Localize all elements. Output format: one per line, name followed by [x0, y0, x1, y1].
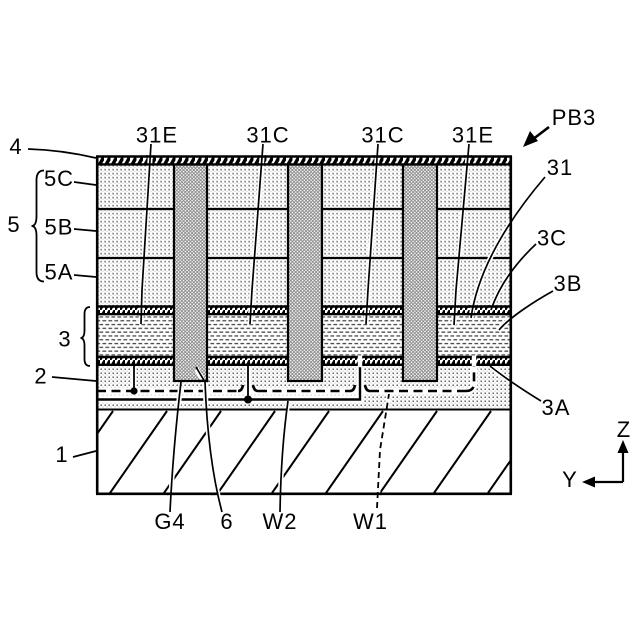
- svg-text:31E: 31E: [452, 123, 494, 148]
- svg-text:1: 1: [55, 442, 68, 467]
- svg-text:3C: 3C: [537, 226, 567, 251]
- svg-text:3: 3: [58, 327, 71, 352]
- svg-text:W1: W1: [353, 509, 388, 534]
- svg-text:G4: G4: [154, 509, 185, 534]
- svg-text:31E: 31E: [136, 123, 178, 148]
- svg-text:5A: 5A: [45, 260, 74, 285]
- svg-text:5C: 5C: [44, 166, 74, 191]
- svg-text:31C: 31C: [246, 123, 289, 148]
- svg-text:5B: 5B: [45, 215, 74, 240]
- svg-text:3B: 3B: [554, 271, 583, 296]
- svg-text:3A: 3A: [542, 395, 571, 420]
- svg-text:31: 31: [547, 155, 573, 180]
- svg-text:6: 6: [220, 509, 233, 534]
- svg-text:2: 2: [34, 364, 47, 389]
- svg-text:W2: W2: [263, 509, 298, 534]
- svg-text:5: 5: [7, 212, 20, 237]
- svg-text:31C: 31C: [361, 123, 404, 148]
- svg-text:Z: Z: [617, 417, 631, 442]
- svg-text:Y: Y: [562, 467, 578, 492]
- svg-text:4: 4: [9, 134, 22, 159]
- svg-text:PB3: PB3: [552, 105, 597, 130]
